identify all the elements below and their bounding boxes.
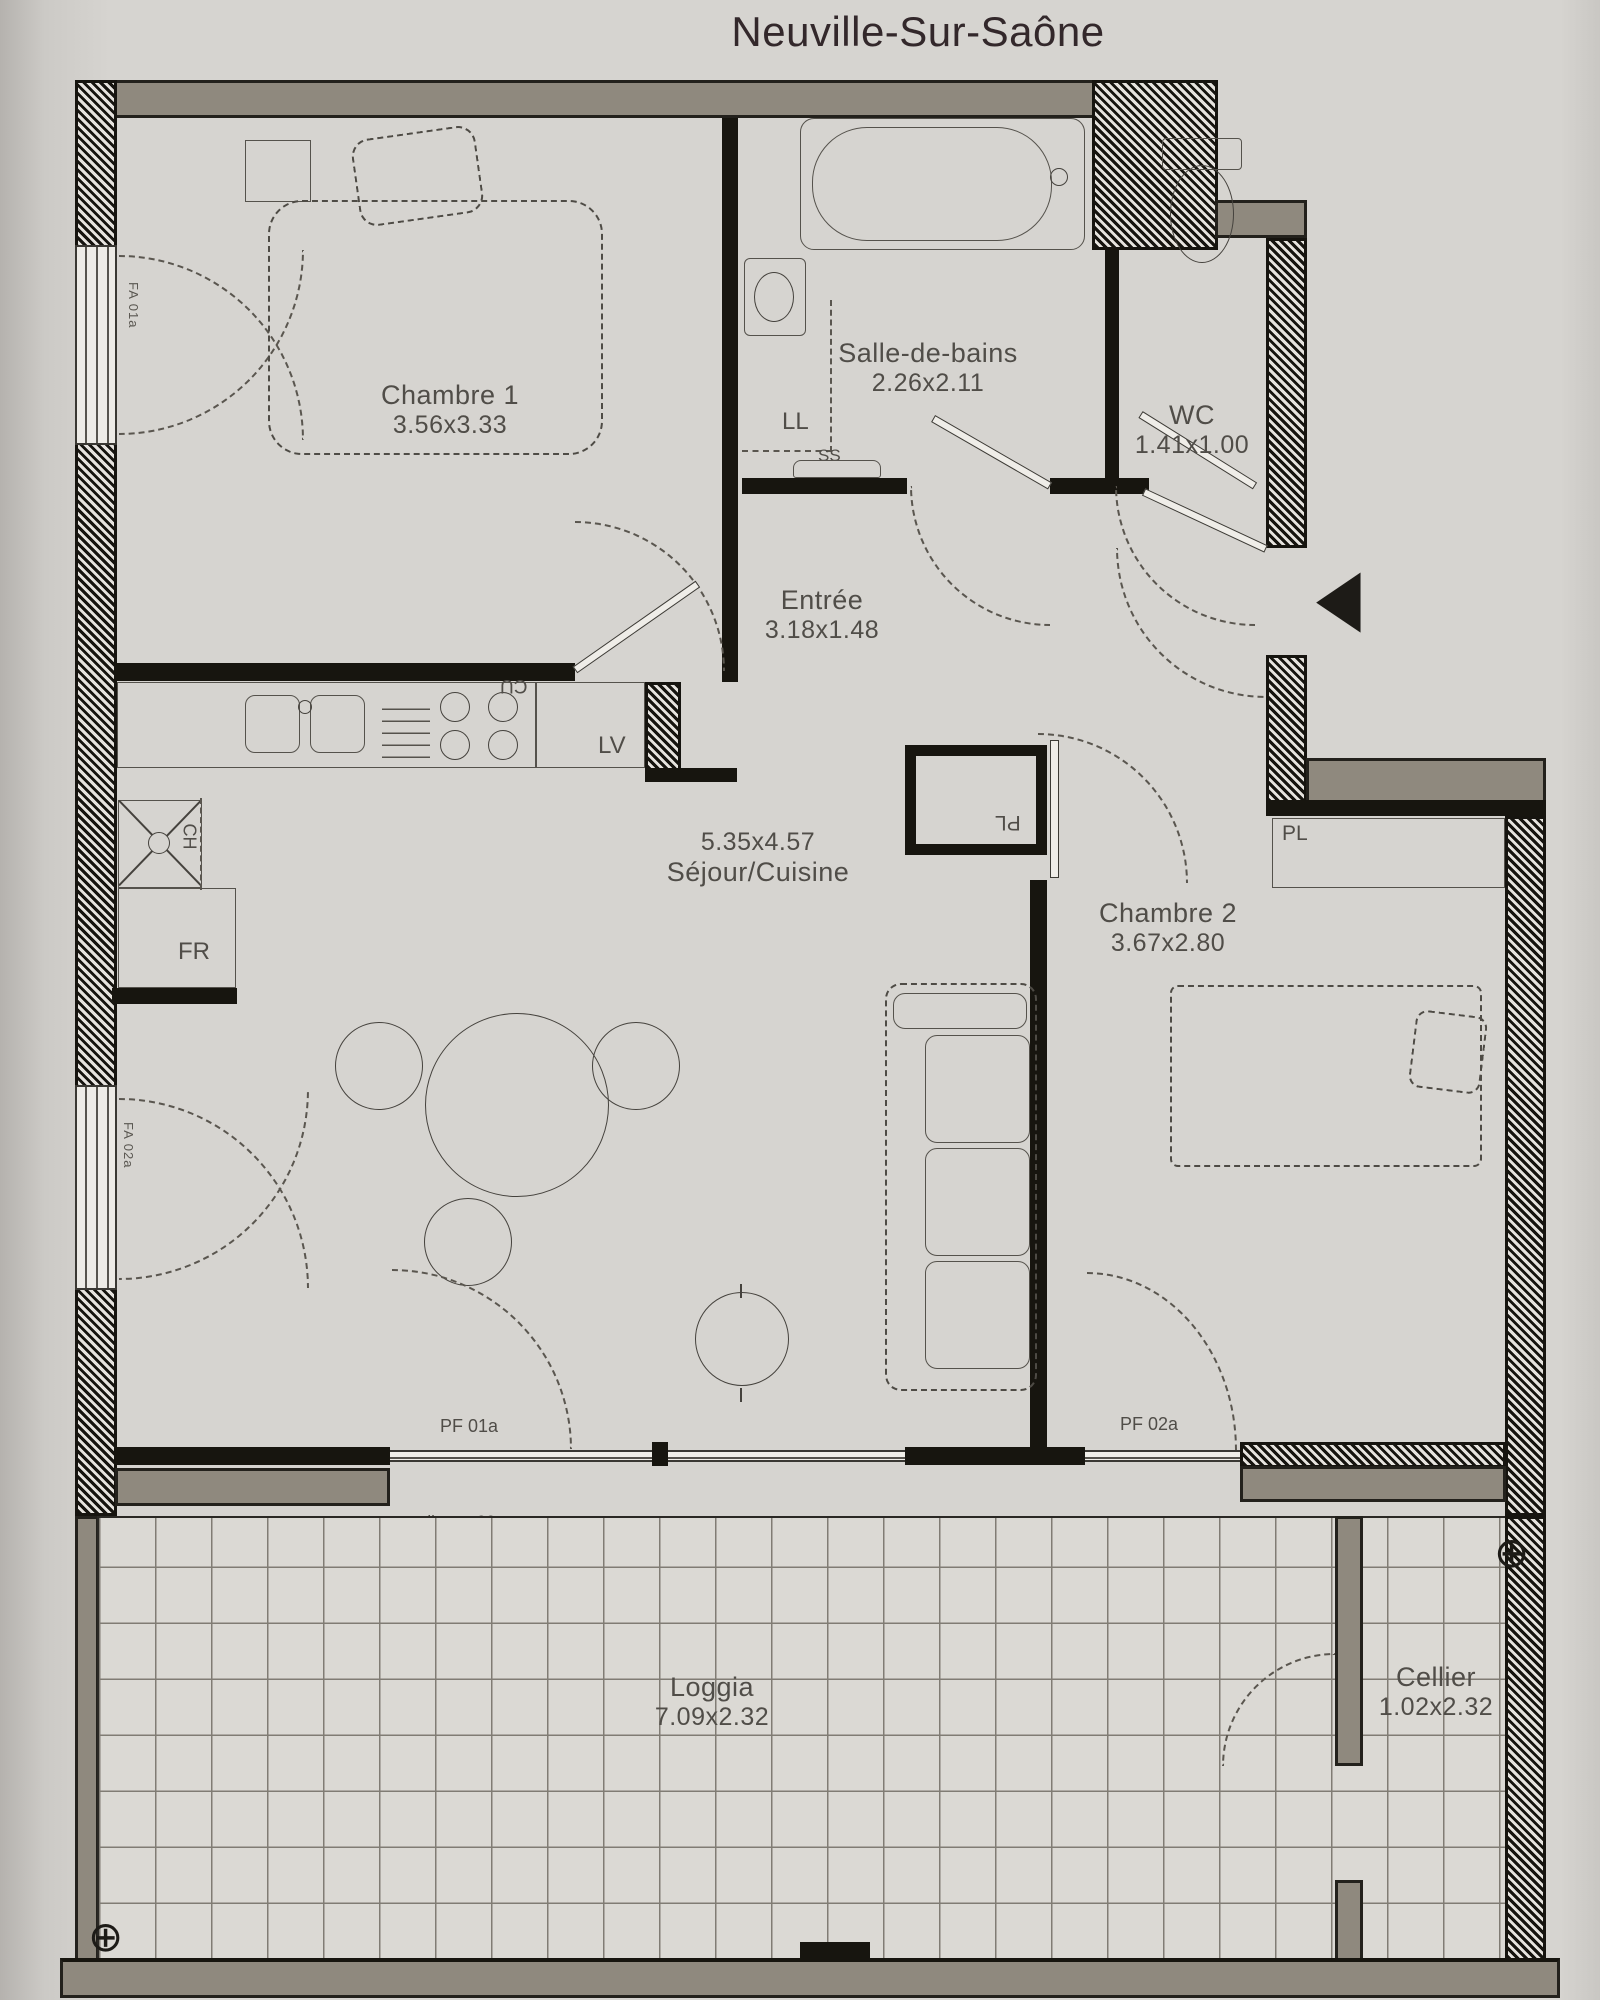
wall-bottom-stub <box>800 1942 870 1962</box>
wall-under-sofa <box>905 1447 1085 1465</box>
chair <box>424 1198 512 1286</box>
label-dishwasher: LV <box>598 732 626 760</box>
side-table-tick <box>740 1388 742 1402</box>
chair <box>335 1022 423 1110</box>
label-window-fa01a: FA 01a <box>126 282 141 328</box>
room-dims: 2.26x2.11 <box>838 369 1018 398</box>
label-cooktop: CU <box>500 674 527 696</box>
wall-wc-left <box>1105 250 1119 478</box>
kitchen-counter <box>117 682 645 768</box>
wall-top <box>75 80 1095 118</box>
room-dims: 1.41x1.00 <box>1135 431 1249 460</box>
room-dims: 3.18x1.48 <box>765 616 879 645</box>
kitchen-sink-left <box>245 695 300 753</box>
wall-loggia-bottom <box>60 1958 1560 1998</box>
side-table <box>695 1292 789 1386</box>
label-boiler: CH <box>179 824 200 850</box>
wall-sejour-bottom <box>115 1447 390 1465</box>
door-arc-entrance <box>1116 548 1266 698</box>
room-name: Entrée <box>765 585 879 616</box>
room-name: Chambre 2 <box>1099 898 1237 929</box>
sofa-cushion <box>925 1035 1030 1143</box>
wall-bottom-right-gray <box>1240 1466 1506 1502</box>
fridge-unit <box>118 888 236 988</box>
stove-burner <box>440 730 470 760</box>
sofa-cushion <box>925 1261 1030 1369</box>
door-arc-bath <box>910 486 1050 626</box>
loggia-door-pf01a <box>390 1450 905 1462</box>
room-dims: 3.67x2.80 <box>1099 929 1237 958</box>
side-table-tick <box>740 1284 742 1298</box>
room-name: Chambre 1 <box>381 380 519 411</box>
kitchen-faucet <box>298 700 312 714</box>
door-leaf-bath <box>931 415 1052 489</box>
wall-chambre2-top <box>1266 800 1546 816</box>
label-window-fa02a: FA 02a <box>121 1122 136 1168</box>
label-washer: LL <box>782 408 809 436</box>
room-name: Séjour/Cuisine <box>667 857 850 888</box>
door-leaf-chambre2 <box>1050 740 1059 878</box>
wall-entree-kitchen <box>722 478 738 682</box>
room-label-salle-de-bains: Salle-de-bains 2.26x2.11 <box>838 338 1018 398</box>
stove-burner <box>488 730 518 760</box>
pillow-chambre2 <box>1408 1009 1489 1095</box>
wall-chambre1-bath <box>722 118 738 478</box>
stove-burner <box>440 692 470 722</box>
label-pf02a: PF 02a <box>1120 1414 1178 1435</box>
room-dims: 7.09x2.32 <box>655 1703 769 1732</box>
room-label-chambre1: Chambre 1 3.56x3.33 <box>381 380 519 440</box>
wall-cellier-lower <box>1335 1880 1363 1962</box>
boiler-dash-line <box>200 798 202 890</box>
page-title: Neuville-Sur-Saône <box>731 8 1104 56</box>
room-label-cellier: Cellier 1.02x2.32 <box>1379 1662 1493 1722</box>
chair <box>592 1022 680 1110</box>
wall-right-wc <box>1266 238 1307 548</box>
toilet-bowl <box>1170 165 1234 263</box>
door-arc-chambre2 <box>1038 733 1188 883</box>
label-fridge: FR <box>178 938 210 966</box>
room-name: Cellier <box>1379 1662 1493 1693</box>
wall-threshold-gray <box>115 1468 390 1506</box>
room-name: WC <box>1135 400 1249 431</box>
room-label-chambre2: Chambre 2 3.67x2.80 <box>1099 898 1237 958</box>
entrance-arrow-icon: ◀ <box>1316 550 1361 642</box>
room-name: Loggia <box>655 1672 769 1703</box>
wall-cellier-upper <box>1335 1516 1363 1766</box>
window-fa02a <box>75 1085 117 1290</box>
wall-bottom-right-hatched <box>1240 1442 1506 1468</box>
room-name: Salle-de-bains <box>838 338 1018 369</box>
window-mullion <box>652 1442 668 1466</box>
wall-gray-chambre2-top <box>1306 758 1546 804</box>
room-label-entree: Entrée 3.18x1.48 <box>765 585 879 645</box>
stove-burner <box>488 692 518 722</box>
label-closet-chambre2: PL <box>1282 822 1308 846</box>
boiler-valve <box>148 832 170 854</box>
room-dims: 1.02x2.32 <box>1379 1693 1493 1722</box>
room-label-sejour: 5.35x4.57 Séjour/Cuisine <box>667 828 850 888</box>
sofa-cushion <box>925 1148 1030 1256</box>
room-label-loggia: Loggia 7.09x2.32 <box>655 1672 769 1732</box>
sofa-armrest <box>893 993 1027 1029</box>
kitchen-counter-divider <box>535 682 537 768</box>
pillar-kitchen <box>645 682 681 772</box>
kitchen-sink-right <box>310 695 365 753</box>
wall-loggia-left <box>75 1516 99 1966</box>
loggia-door-pf02a <box>1085 1450 1240 1462</box>
closet-entree <box>905 745 1047 855</box>
bathtub-faucet <box>1050 168 1068 186</box>
label-closet-entree: PL <box>995 810 1021 834</box>
wall-bath-wc-stub <box>1050 478 1120 494</box>
room-dims: 3.56x3.33 <box>381 411 519 440</box>
kitchen-drainer <box>382 698 430 758</box>
room-label-wc: WC 1.41x1.00 <box>1135 400 1249 460</box>
wall-loggia-right <box>1505 1516 1546 1962</box>
crosshair-icon: ⊕ <box>88 1912 123 1961</box>
dining-table <box>425 1013 609 1197</box>
label-pf01a: PF 01a <box>440 1416 498 1437</box>
nightstand-chambre1 <box>245 140 311 202</box>
crosshair-icon: ⊕ <box>1494 1528 1529 1577</box>
wall-right-chambre2 <box>1505 816 1546 1516</box>
bathtub-basin <box>812 127 1052 241</box>
towel-radiator <box>793 460 881 478</box>
wall-right-entry <box>1266 655 1307 805</box>
window-fa01a <box>75 245 117 445</box>
wall-kitchen-cap <box>645 768 737 782</box>
wall-bath-bottom <box>742 478 907 494</box>
wall-fridge-stub <box>112 988 237 1004</box>
room-dims: 5.35x4.57 <box>667 828 850 857</box>
